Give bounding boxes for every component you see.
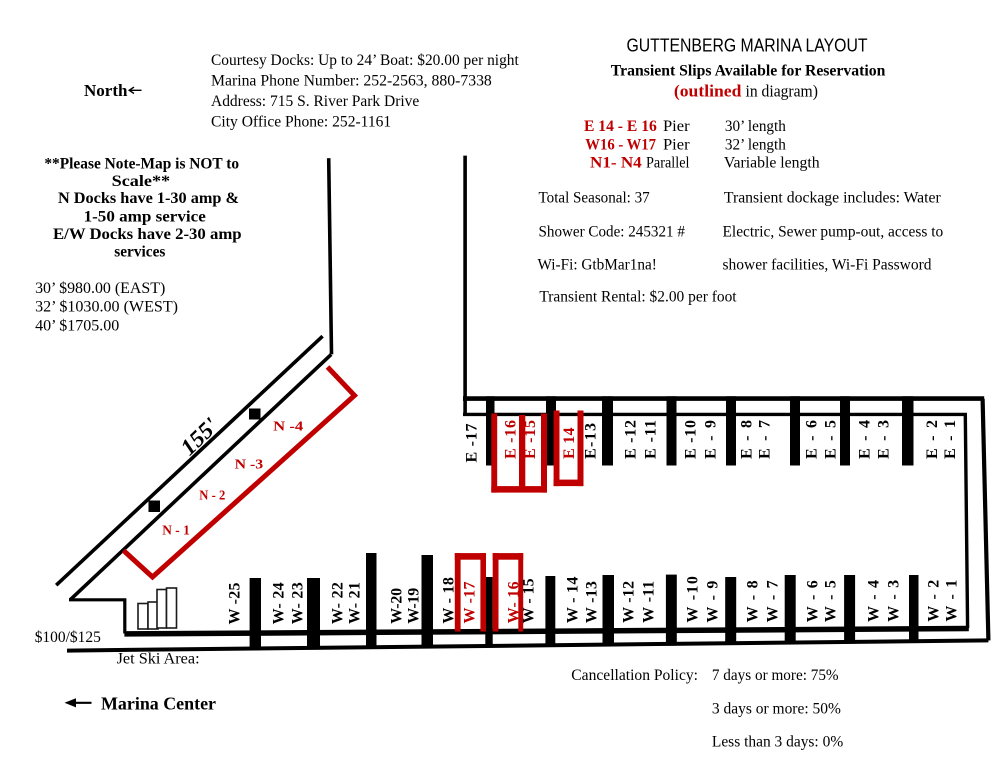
svg-text:E -10: E -10 <box>683 420 700 459</box>
svg-text:30’ $980.00 (EAST): 30’ $980.00 (EAST) <box>35 280 165 297</box>
svg-text:Address: 715 S. River Park Dri: Address: 715 S. River Park Drive <box>211 93 419 110</box>
svg-text:N Docks have 1-30 amp &: N Docks have 1-30 amp & <box>58 190 239 207</box>
svg-text:N - 1: N - 1 <box>162 524 190 539</box>
svg-text:1-50 amp service: 1-50 amp service <box>84 209 206 226</box>
svg-text:E - 6: E - 6 <box>804 420 821 459</box>
svg-text:Variable length: Variable length <box>724 154 820 171</box>
svg-text:services: services <box>114 243 165 260</box>
svg-text:W -13: W -13 <box>584 581 601 623</box>
svg-text:Jet Ski Area:: Jet Ski Area: <box>117 650 200 668</box>
svg-text:shower facilities, Wi-Fi Passw: shower facilities, Wi-Fi Password <box>723 256 932 273</box>
svg-text:E - 5: E - 5 <box>823 420 840 459</box>
svg-text:Electric, Sewer pump-out, acce: Electric, Sewer pump-out, access to <box>723 223 944 240</box>
svg-text:W- 21: W- 21 <box>347 582 364 624</box>
svg-text:**Please Note-Map is NOT to: **Please Note-Map is NOT to <box>44 156 239 173</box>
svg-text:E -15: E -15 <box>522 420 539 459</box>
svg-text:Marina Phone Number: 252-2563,: Marina Phone Number: 252-2563, 880-7338 <box>211 73 492 90</box>
svg-text:Pier: Pier <box>663 136 690 153</box>
svg-text:E-13: E-13 <box>583 423 600 459</box>
svg-text:E - 3: E - 3 <box>876 420 893 459</box>
svg-text:W -12: W -12 <box>621 581 638 623</box>
svg-text:40’ $1705.00: 40’ $1705.00 <box>35 317 119 334</box>
svg-text:North: North <box>84 81 128 100</box>
svg-text:Marina Center: Marina Center <box>101 694 216 714</box>
svg-text:W -17: W -17 <box>462 582 479 624</box>
svg-text:3 days or more: 50%: 3 days or more: 50% <box>712 700 841 717</box>
svg-text:in diagram): in diagram) <box>746 82 818 101</box>
svg-text:E - 4: E - 4 <box>857 420 874 459</box>
svg-text:Courtesy Docks: Up to 24’ Boat: Courtesy Docks: Up to 24’ Boat: $20.00 p… <box>211 52 519 69</box>
svg-text:Less than 3 days: 0%: Less than 3 days: 0% <box>712 734 843 751</box>
svg-text:E/W Docks have 2-30 amp: E/W Docks have 2-30 amp <box>53 226 242 243</box>
svg-text:Pier: Pier <box>663 118 690 135</box>
svg-text:Transient Rental: $2.00 per fo: Transient Rental: $2.00 per foot <box>539 289 737 306</box>
svg-text:N -4: N -4 <box>273 420 303 435</box>
svg-text:E -16: E -16 <box>503 420 520 459</box>
svg-text:E -11: E -11 <box>643 420 660 459</box>
svg-text:W-20: W-20 <box>389 588 406 624</box>
svg-text:(outlined: (outlined <box>674 82 742 101</box>
svg-text:E - 1: E - 1 <box>942 420 959 459</box>
svg-text:W - 18: W - 18 <box>441 577 458 624</box>
svg-text:$100/$125: $100/$125 <box>35 629 101 646</box>
svg-text:Transient Slips Available for: Transient Slips Available for Reservatio… <box>611 63 886 80</box>
svg-text:7 days or more: 75%: 7 days or more: 75% <box>712 667 839 684</box>
svg-text:32’ length: 32’ length <box>725 136 786 153</box>
svg-text:Total Seasonal: 37: Total Seasonal: 37 <box>539 190 650 207</box>
svg-text:W- 23: W- 23 <box>290 582 307 624</box>
svg-text:E 14 - E 16: E 14 - E 16 <box>584 118 657 135</box>
svg-text:E - 9: E - 9 <box>703 420 720 459</box>
svg-text:Parallel: Parallel <box>646 154 690 171</box>
svg-text:Shower Code: 245321 #: Shower Code: 245321 # <box>539 223 686 240</box>
svg-text:E - 2: E - 2 <box>924 420 941 459</box>
svg-text:E - 8: E - 8 <box>739 420 756 459</box>
svg-text:W - 15: W - 15 <box>521 578 538 623</box>
svg-text:N -3: N -3 <box>235 457 264 472</box>
svg-text:E 14: E 14 <box>561 428 578 460</box>
svg-text:W- 24: W- 24 <box>271 582 288 624</box>
svg-text:W- 22: W- 22 <box>330 582 347 624</box>
svg-text:W -11: W -11 <box>641 581 658 623</box>
svg-text:E - 7: E - 7 <box>757 420 774 459</box>
svg-text:E -12: E -12 <box>623 420 640 459</box>
svg-text:Wi-Fi: GtbMar1na!: Wi-Fi: GtbMar1na! <box>538 256 657 273</box>
svg-text:W16 - W17: W16 - W17 <box>585 136 656 153</box>
svg-text:Scale**: Scale** <box>112 173 171 190</box>
svg-text:City Office Phone: 252-1161: City Office Phone: 252-1161 <box>211 113 391 130</box>
svg-text:30’ length: 30’ length <box>725 118 786 135</box>
svg-text:E -17: E -17 <box>464 424 481 463</box>
svg-text:W -25: W -25 <box>227 583 244 625</box>
svg-text:N - 2: N - 2 <box>199 488 225 503</box>
svg-text:N1- N4: N1- N4 <box>590 154 642 171</box>
svg-text:W - 14: W - 14 <box>565 577 582 624</box>
svg-text:GUTTENBERG MARINA LAYOUT: GUTTENBERG MARINA LAYOUT <box>627 35 868 55</box>
svg-text:W-19: W-19 <box>406 588 423 624</box>
svg-text:32’ $1030.00 (WEST): 32’ $1030.00 (WEST) <box>35 299 178 316</box>
svg-text:Transient dockage includes: Wa: Transient dockage includes: Water <box>724 190 942 207</box>
svg-text:W -10: W -10 <box>685 576 702 623</box>
svg-text:Cancellation Policy:: Cancellation Policy: <box>571 667 698 684</box>
